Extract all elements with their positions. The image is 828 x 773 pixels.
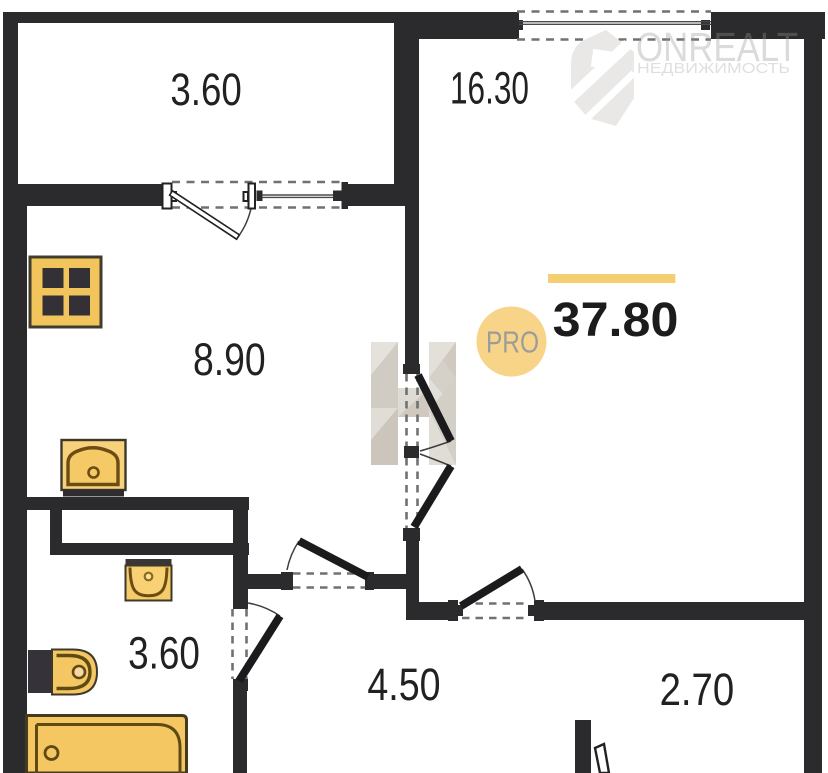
svg-text:НЕДВИЖИМОСТЬ: НЕДВИЖИМОСТЬ bbox=[637, 60, 790, 77]
svg-text:PRO: PRO bbox=[486, 325, 539, 360]
svg-text:8.90: 8.90 bbox=[193, 334, 266, 385]
svg-text:4.50: 4.50 bbox=[367, 659, 440, 710]
svg-text:37.80: 37.80 bbox=[553, 294, 679, 347]
svg-text:3.60: 3.60 bbox=[170, 64, 241, 115]
svg-text:3.60: 3.60 bbox=[128, 628, 200, 679]
svg-text:16.30: 16.30 bbox=[450, 63, 529, 114]
svg-text:2.70: 2.70 bbox=[660, 664, 735, 715]
